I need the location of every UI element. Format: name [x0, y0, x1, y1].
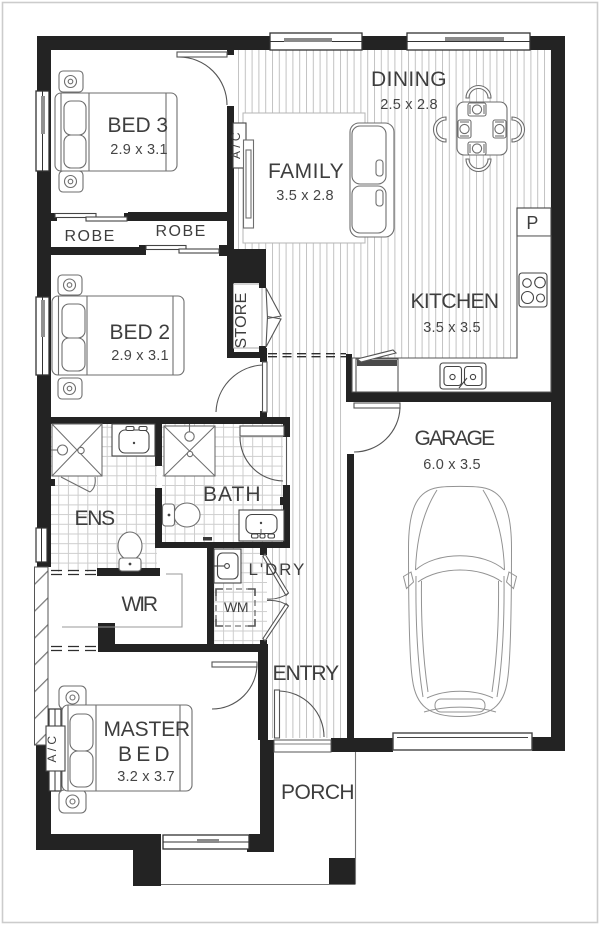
- svg-text:STORE: STORE: [233, 292, 250, 349]
- svg-text:ENS: ENS: [75, 507, 116, 530]
- svg-text:3.2 x 3.7: 3.2 x 3.7: [117, 769, 174, 785]
- svg-text:6.0 x 3.5: 6.0 x 3.5: [423, 457, 480, 473]
- svg-text:3.5 x 2.8: 3.5 x 2.8: [276, 188, 333, 204]
- svg-text:WM: WM: [224, 599, 249, 615]
- svg-text:BED 2: BED 2: [110, 321, 171, 344]
- svg-text:ROBE: ROBE: [156, 223, 207, 240]
- svg-text:BATH: BATH: [203, 483, 261, 506]
- svg-text:MASTER: MASTER: [104, 718, 191, 741]
- svg-text:ROBE: ROBE: [65, 228, 116, 245]
- svg-text:L'DRY: L'DRY: [249, 560, 306, 579]
- svg-text:2.9 x 3.1: 2.9 x 3.1: [110, 142, 167, 158]
- svg-text:PORCH: PORCH: [281, 781, 355, 804]
- svg-text:A/C: A/C: [45, 736, 59, 763]
- svg-text:A/C: A/C: [229, 132, 243, 159]
- svg-text:DINING: DINING: [371, 68, 447, 91]
- svg-text:BED: BED: [118, 743, 170, 766]
- svg-text:GARAGE: GARAGE: [415, 427, 496, 450]
- svg-text:BED 3: BED 3: [108, 114, 169, 137]
- svg-text:FAMILY: FAMILY: [268, 160, 344, 183]
- svg-text:P: P: [526, 213, 539, 233]
- svg-text:3.5 x 3.5: 3.5 x 3.5: [423, 320, 480, 336]
- svg-text:KITCHEN: KITCHEN: [411, 290, 500, 313]
- svg-text:WIR: WIR: [122, 593, 159, 616]
- svg-text:2.9 x 3.1: 2.9 x 3.1: [111, 348, 168, 364]
- svg-text:2.5 x 2.8: 2.5 x 2.8: [380, 97, 437, 113]
- svg-text:ENTRY: ENTRY: [273, 662, 340, 685]
